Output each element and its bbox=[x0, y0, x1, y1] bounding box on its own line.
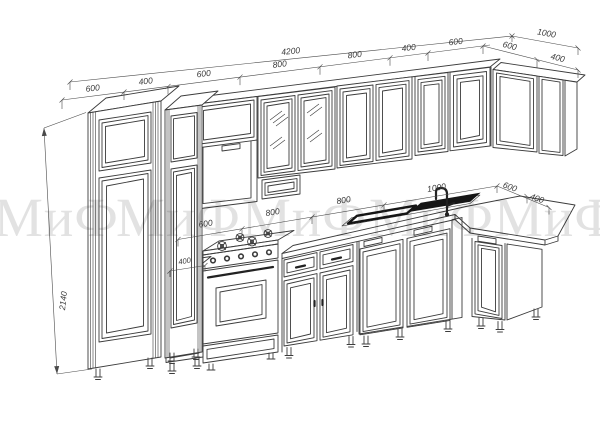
wall-cabinet-corner-600 bbox=[450, 67, 491, 151]
stove-legs bbox=[207, 353, 275, 370]
arrow-bottom bbox=[54, 366, 59, 374]
dim-label-top-2: 400 bbox=[138, 75, 154, 87]
dim-label-right-depth: 1000 bbox=[536, 26, 557, 39]
wall-cabinet-400 bbox=[415, 73, 448, 156]
watermark-text-4: МиФ bbox=[369, 187, 494, 248]
dim-label-top-7: 600 bbox=[448, 36, 464, 48]
dim-label-top-6: 400 bbox=[401, 42, 417, 54]
watermark-text-1: МиФ bbox=[0, 187, 119, 248]
stove bbox=[203, 230, 294, 370]
kitchen-drawing-page: 4200 600 400 600 800 800 400 600 1000 60… bbox=[0, 0, 600, 424]
wall-cabinet-glass-800 bbox=[258, 87, 335, 199]
arrow-top bbox=[42, 128, 47, 136]
watermark-text-3: МиФ bbox=[242, 187, 367, 248]
oven-window bbox=[216, 280, 266, 326]
dim-label-height: 2140 bbox=[57, 290, 69, 311]
dim-label-top-1: 600 bbox=[85, 82, 101, 94]
door-left bbox=[360, 239, 403, 334]
base-cabinets-right-arm bbox=[472, 236, 542, 332]
end-panel bbox=[565, 80, 577, 156]
dim-right-overall: 1000 bbox=[510, 26, 581, 55]
dim-label-right-2: 400 bbox=[550, 51, 566, 64]
wall-cabinets-right-arm bbox=[493, 70, 577, 157]
watermark: МиФ МиФ МиФ МиФ МиФ bbox=[0, 187, 600, 248]
door-left bbox=[284, 274, 317, 346]
drawer-left bbox=[284, 253, 317, 277]
legs bbox=[168, 358, 201, 374]
base-cabinet-800 bbox=[282, 242, 357, 358]
dim-label-total-width: 4200 bbox=[281, 45, 301, 57]
drawer-right bbox=[320, 245, 353, 269]
watermark-text-2: МиФ bbox=[116, 187, 241, 248]
kitchen-technical-drawing: 4200 600 400 600 800 800 400 600 1000 60… bbox=[0, 0, 600, 424]
end-panel bbox=[507, 244, 542, 320]
dim-label-right-1: 600 bbox=[502, 39, 518, 52]
dim-label-top-3: 600 bbox=[196, 68, 212, 80]
door-handles bbox=[315, 300, 323, 306]
dim-label-top-5: 800 bbox=[347, 49, 363, 61]
wall-cabinet-800 bbox=[337, 77, 412, 168]
dim-label-top-4: 800 bbox=[272, 58, 288, 70]
door bbox=[475, 242, 502, 319]
watermark-text-5: МиФ bbox=[494, 187, 600, 248]
door-right bbox=[320, 266, 353, 341]
